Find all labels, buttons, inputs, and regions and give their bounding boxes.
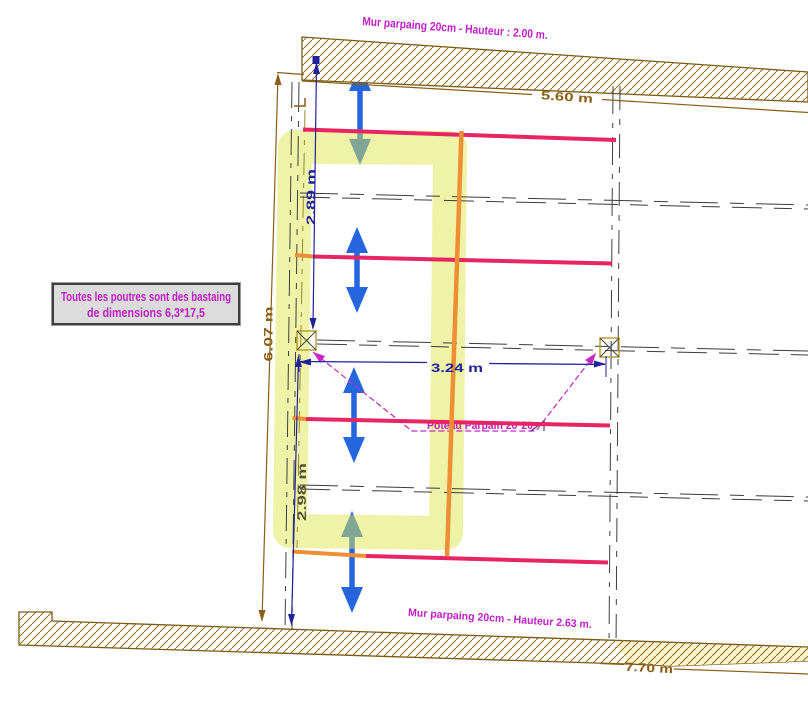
beam-4 — [366, 556, 608, 563]
bottom-wall-hatch — [19, 612, 808, 666]
note-box: Toutes les poutres sont des bastaing de … — [52, 283, 241, 326]
dim-left-height-value: 6.07 m — [262, 307, 276, 362]
dim-lower-bay-value: 2.98 m — [295, 463, 309, 521]
floor-plan-canvas: Poteau Parpain 20*20 5.60 m 6.07 m — [0, 0, 808, 707]
right-wall-axis — [609, 86, 620, 648]
dim-upper-bay-value: 2.89 m — [304, 169, 318, 225]
note-line-1: Toutes les poutres sont des bastaing — [61, 290, 231, 304]
beam-4-orange — [292, 552, 366, 557]
dim-top-width-value: 5.60 m — [541, 88, 594, 106]
post-right — [600, 338, 619, 357]
bottom-wall-label: Mur parpaing 20cm - Hauteur 2.63 m. — [408, 607, 592, 631]
span-arrow-2 — [346, 227, 368, 313]
top-wall-label: Mur parpaing 20cm - Hauteur : 2.00 m. — [362, 14, 549, 42]
wall-corner-mark — [294, 98, 305, 106]
joist-axis-2 — [317, 340, 808, 355]
dim-bottom-width-value: 7.70 m — [625, 660, 674, 676]
joist-axes — [300, 193, 808, 501]
joist-axis-3 — [300, 485, 808, 501]
span-arrow-3 — [343, 367, 365, 463]
joist-axis-1 — [300, 193, 808, 209]
beam-2-orange-tip — [295, 255, 313, 257]
beam-3-orange-tip — [293, 418, 307, 419]
dim-post-spacing-value: 3.24 m — [431, 361, 483, 375]
note-line-2: de dimensions 6,3*17,5 — [87, 306, 205, 320]
floor-plan-drawing: Poteau Parpain 20*20 5.60 m 6.07 m — [0, 0, 808, 707]
